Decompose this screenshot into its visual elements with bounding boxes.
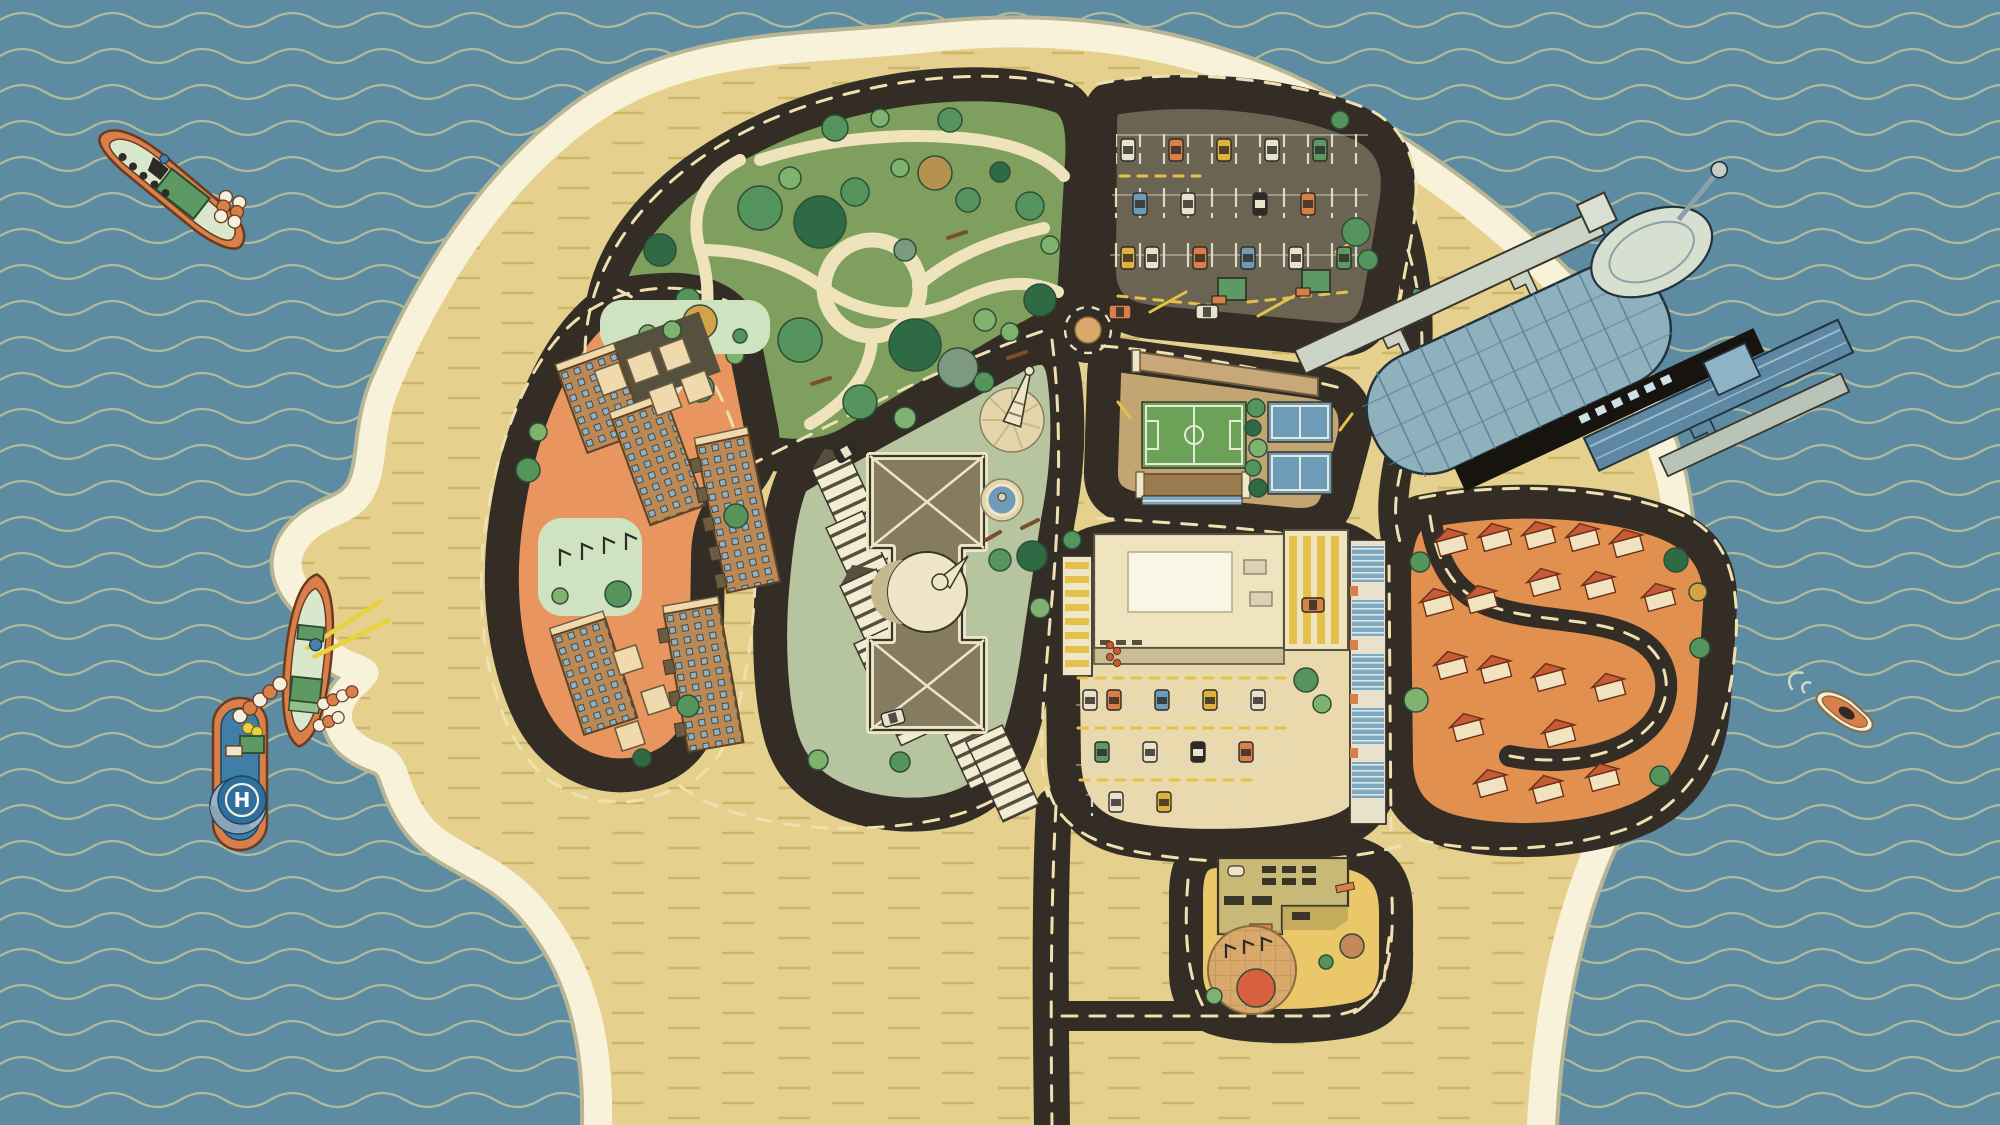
car: [1203, 690, 1217, 710]
car: [1337, 247, 1351, 269]
mall-skylight-section: [1284, 530, 1348, 650]
car: [1265, 139, 1279, 161]
mall-store: [1094, 534, 1284, 664]
parking-bays-row2: [1112, 188, 1368, 218]
civic-dome: [887, 552, 967, 632]
mall-strip-left: [1062, 556, 1092, 676]
mall-roof-panel: [1128, 552, 1232, 612]
boat-cabin: [297, 625, 324, 642]
grandstand: [1136, 472, 1250, 505]
car: [1302, 598, 1324, 612]
car: [1083, 690, 1097, 710]
car: [1239, 742, 1253, 762]
car: [1217, 139, 1231, 161]
car: [1143, 742, 1157, 762]
boat-cabin: [240, 736, 264, 753]
helipad-letter: H: [234, 788, 251, 812]
car: [1121, 247, 1135, 269]
car: [1169, 139, 1183, 161]
car: [1191, 742, 1205, 762]
car: [1145, 247, 1159, 269]
car: [1181, 193, 1195, 215]
car: [1121, 139, 1135, 161]
car: [1133, 193, 1147, 215]
car: [1289, 247, 1303, 269]
car: [1109, 792, 1123, 812]
car: [1196, 305, 1218, 319]
neck-road: [1051, 806, 1054, 1125]
stem-plaza: [1206, 926, 1296, 1014]
barrel: [309, 638, 322, 651]
car: [1253, 193, 1267, 215]
car: [1095, 742, 1109, 762]
car: [1251, 690, 1265, 710]
soccer-field: [1142, 402, 1246, 468]
stem-factory: [1218, 858, 1355, 934]
car: [1155, 690, 1169, 710]
car: [1107, 690, 1121, 710]
car: [1301, 193, 1315, 215]
civic-building: [870, 456, 984, 730]
car: [1313, 139, 1327, 161]
parking-bays-row1: [1116, 134, 1368, 164]
car: [1109, 305, 1131, 319]
roundabout-center: [1075, 317, 1101, 343]
brain-city-illustration: H: [0, 0, 2000, 1125]
car: [1157, 792, 1171, 812]
fountain: [981, 479, 1023, 521]
pocket-park-left: [538, 518, 642, 616]
car: [1193, 247, 1207, 269]
mall-garage-strip: [1350, 540, 1386, 824]
boat-cabin: [290, 676, 322, 703]
car: [1241, 247, 1255, 269]
